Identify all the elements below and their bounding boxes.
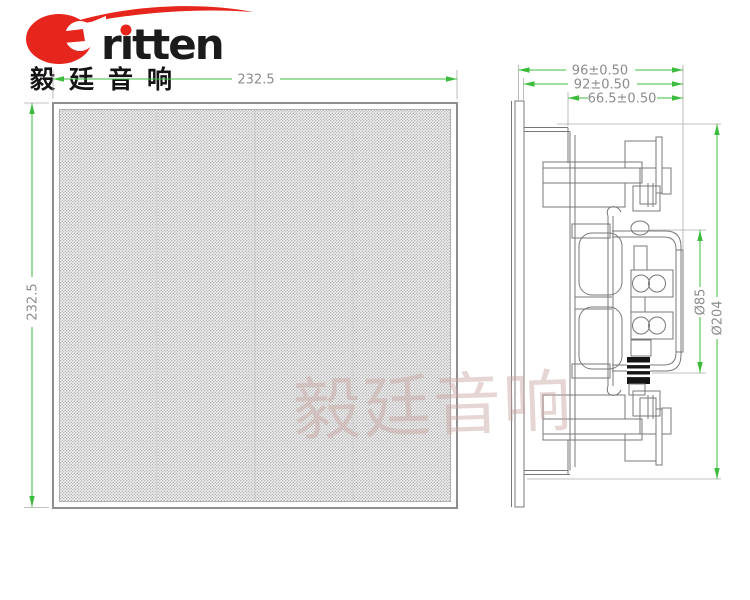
dim-diameter-body: Ø204: [711, 124, 726, 479]
spring-terminal-icon: [627, 357, 650, 395]
watermark: 毅廷音响: [292, 363, 575, 452]
dim-front-height: 232.5: [24, 103, 49, 508]
dim-diameter-magnet: Ø85: [694, 230, 709, 373]
dim-depth-behind-flange-label: 92±0.50: [574, 78, 630, 93]
dim-diameter-magnet-label: Ø85: [694, 289, 709, 316]
dim-depth-overall-label: 96±0.50: [572, 64, 628, 79]
dim-depth-mounting-label: 66.5±0.50: [588, 92, 657, 107]
logo-i-dot-icon: [121, 25, 132, 36]
logo-e-icon: [26, 14, 106, 64]
dim-depth-behind-flange: 92±0.50: [524, 78, 684, 93]
logo: rıtten 毅廷音响: [26, 6, 253, 94]
dim-depth-mounting: 66.5±0.50: [568, 92, 683, 107]
dim-front-height-label: 232.5: [26, 283, 41, 320]
technical-drawing: rıtten 毅廷音响 232.5: [0, 0, 750, 600]
dim-front-width-label: 232.5: [237, 73, 274, 88]
dim-diameter-body-label: Ø204: [711, 300, 726, 335]
dim-depth-overall: 96±0.50: [519, 64, 684, 79]
side-section-drawing: [512, 101, 684, 507]
logo-brand-text: rıtten: [101, 20, 223, 69]
